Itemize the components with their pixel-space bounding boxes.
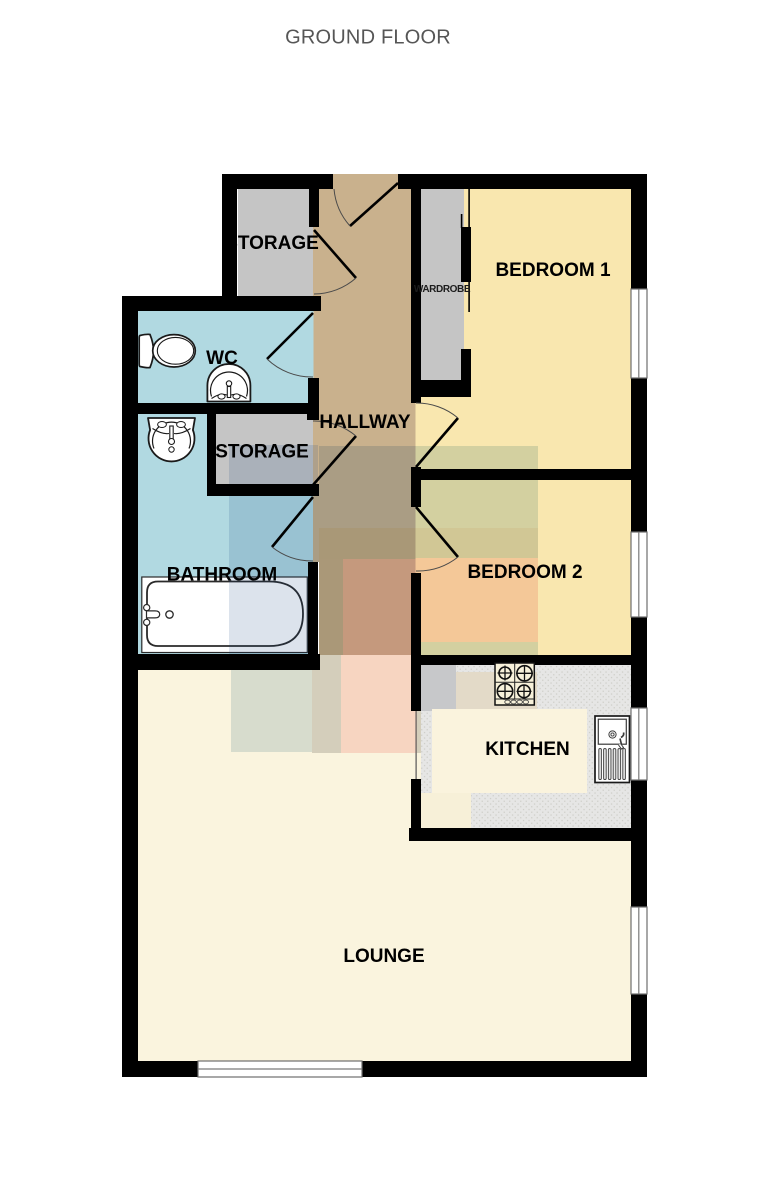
svg-text:GROUND FLOOR: GROUND FLOOR (285, 27, 451, 49)
svg-text:STORAGE: STORAGE (215, 442, 309, 463)
svg-text:BEDROOM 1: BEDROOM 1 (495, 260, 611, 281)
svg-text:BATHROOM: BATHROOM (167, 565, 277, 586)
svg-text:HALLWAY: HALLWAY (319, 412, 410, 433)
svg-text:WC: WC (206, 348, 238, 369)
svg-text:STORAGE: STORAGE (225, 233, 319, 254)
svg-text:WARDROBE: WARDROBE (414, 284, 471, 295)
svg-text:BEDROOM 2: BEDROOM 2 (467, 562, 582, 583)
svg-text:KITCHEN: KITCHEN (485, 739, 569, 760)
svg-text:LOUNGE: LOUNGE (343, 946, 424, 967)
